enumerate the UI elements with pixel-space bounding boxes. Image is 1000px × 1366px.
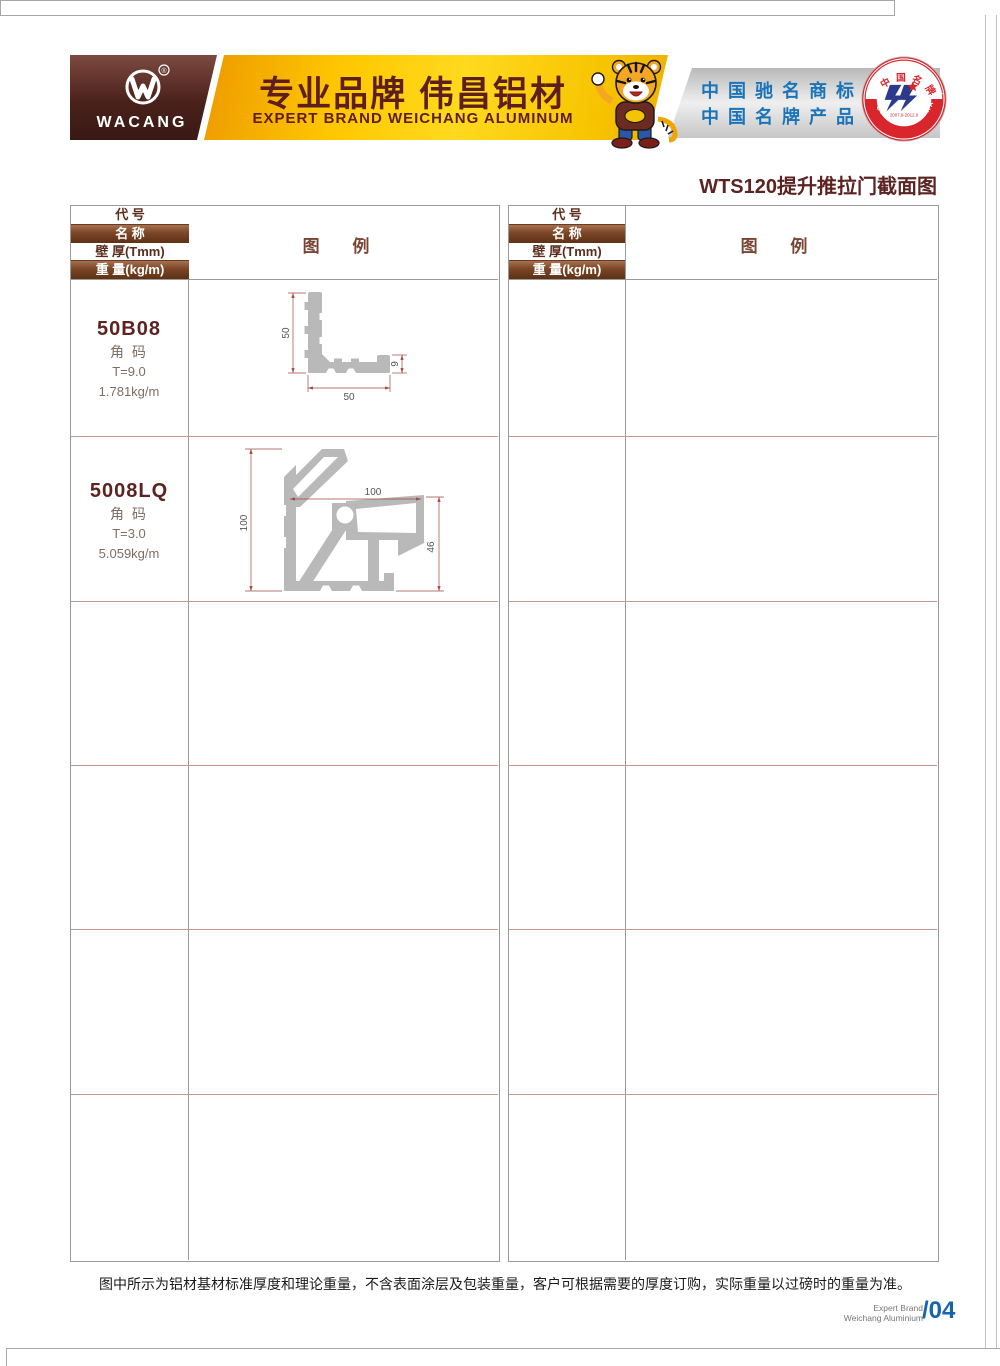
dim-height: 50 (281, 327, 292, 339)
china-top-brand-badge: 中国名牌 CHINA TOP BRAND 2007.9-2012.9 (860, 55, 948, 143)
header-thickness: 壁 厚(Tmm) (71, 243, 189, 261)
profile-table-right (508, 205, 939, 1262)
row-line (508, 929, 937, 930)
header-weight: 重 量(kg/m) (509, 260, 625, 280)
row-line (70, 929, 498, 930)
registered-mark: ® (161, 67, 167, 75)
header-code: 代 号 (71, 206, 189, 224)
row-line (70, 436, 498, 437)
header-legend-left: 图 例 (189, 232, 497, 257)
row-line (70, 765, 498, 766)
profile-weight: 1.781kg/m (70, 382, 188, 402)
right-table-column-divider (625, 205, 626, 1260)
dim-width: 100 (365, 487, 382, 498)
header-weight: 重 量(kg/m) (71, 260, 189, 280)
profile-code: 5008LQ (70, 478, 188, 504)
banner-subtitle: EXPERT BRAND WEICHANG ALUMINUM (218, 110, 608, 127)
badge-period: 2007.9-2012.9 (890, 113, 919, 118)
profile-entry-50B08: 50B08 角 码 T=9.0 1.781kg/m (70, 316, 188, 402)
footer-brand: Expert Brand Weichang Aluminium (763, 1303, 923, 1323)
honor-line-1: 中国驰名商标 (692, 77, 872, 103)
dim-height: 100 (240, 514, 250, 531)
footer-brand-line2: Weichang Aluminium (763, 1313, 923, 1323)
row-line (508, 765, 937, 766)
page-title: WTS120提升推拉门截面图 (337, 170, 937, 199)
row-line (508, 1094, 937, 1095)
profile-drawing-50B08: 50 50 9 (280, 280, 420, 405)
row-line (508, 436, 937, 437)
header-thickness: 壁 厚(Tmm) (509, 243, 625, 261)
catalog-page: ® WACANG 专业品牌 伟昌铝材 EXPERT BRAND WEICHANG… (0, 0, 1000, 1366)
left-table-column-divider (188, 205, 189, 1260)
page-right-edge-line (985, 15, 986, 1348)
page-right-outer-line (996, 15, 997, 1348)
header-code: 代 号 (509, 206, 625, 224)
profile-drawing-5008LQ: 100 100 46 (240, 443, 455, 603)
dim-end: 46 (426, 541, 437, 553)
dim-width: 50 (343, 392, 355, 403)
wacang-logo-text: WACANG (82, 114, 202, 132)
row-line (70, 1094, 498, 1095)
profile-thickness: T=3.0 (70, 524, 188, 544)
profile-code: 50B08 (70, 316, 188, 342)
footer-note: 图中所示为铝材基材标准厚度和理论重量，不含表面涂层及包装重量，客户可根据需要的厚… (0, 1274, 1000, 1294)
wacang-logo-icon: ® (110, 60, 180, 116)
header-name: 名 称 (509, 224, 625, 244)
header-name: 名 称 (71, 224, 189, 244)
footer-brand-line1: Expert Brand (763, 1303, 923, 1313)
row-line (508, 601, 937, 602)
profile-weight: 5.059kg/m (70, 544, 188, 564)
next-page-edge (6, 1348, 1000, 1366)
dim-end: 9 (390, 361, 401, 367)
page-number: /04 (922, 1297, 966, 1325)
profile-name: 角 码 (70, 342, 188, 362)
row-line (508, 279, 937, 280)
profile-entry-5008LQ: 5008LQ 角 码 T=3.0 5.059kg/m (70, 478, 188, 564)
previous-page-edge (0, 0, 895, 16)
header-legend-right: 图 例 (626, 232, 936, 257)
tiger-mascot-icon (588, 57, 688, 149)
profile-thickness: T=9.0 (70, 362, 188, 382)
honor-line-2: 中国名牌产品 (692, 103, 872, 129)
profile-name: 角 码 (70, 504, 188, 524)
